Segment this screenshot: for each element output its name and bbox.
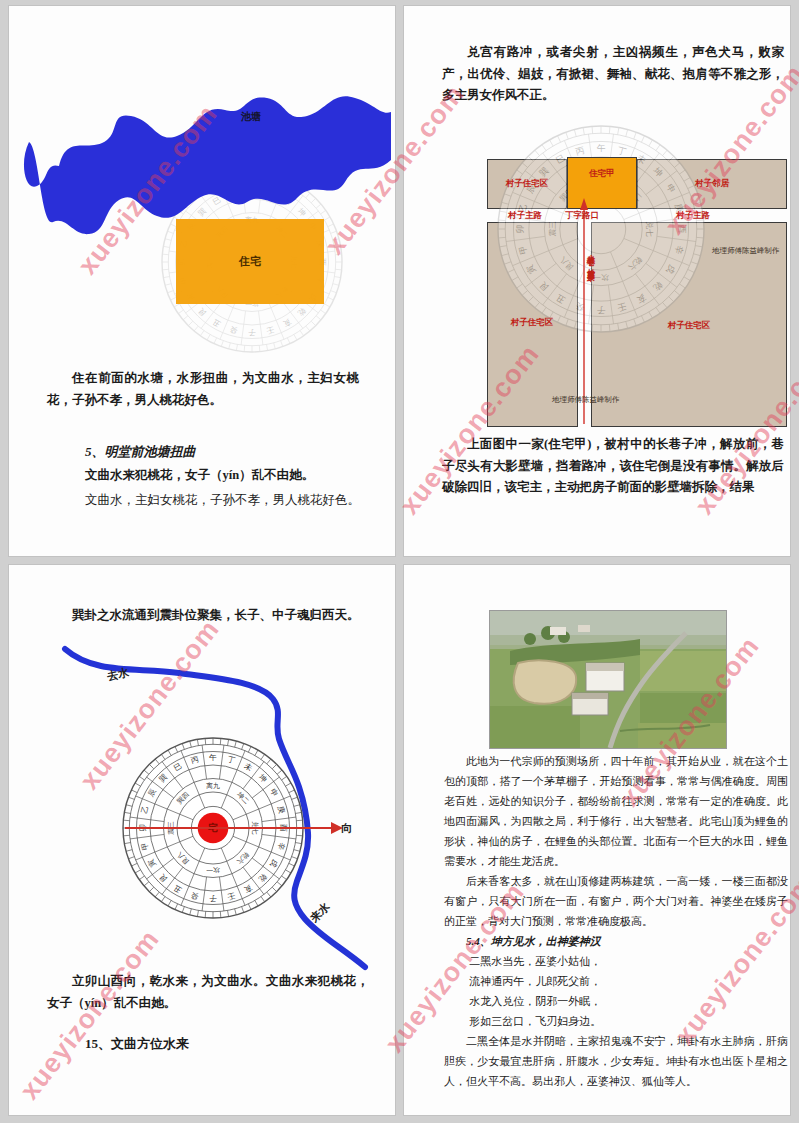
maker-credit-bottom: 地理师傅陈益峰制作: [552, 395, 620, 405]
para-two-buildings: 后来香客太多，就在山顶修建两栋建筑，一高一矮，一楼三面都没有窗户，只有大门所在一…: [444, 871, 788, 931]
house-jia-label: 住宅甲: [589, 168, 615, 180]
luopan-compass-overlay: 午丁未坤申庚酉辛戌乾亥壬子癸丑艮寅甲卯乙辰巽巳丙离九坤二兑七乾六坎一艮八震三巽四: [496, 124, 706, 334]
para-dui-palace: 兑宫有路冲，或者尖射，主凶祸频生，声色犬马，败家产，出优伶、娼妓，有掀裙、舞袖、…: [442, 42, 784, 107]
maker-credit-right: 地理师傅陈益峰制作: [712, 246, 780, 256]
svg-text:兑七: 兑七: [645, 221, 654, 237]
verse-line-1: 二黑水当先，巫婆小姑仙，: [444, 951, 788, 971]
para-master-site: 此地为一代宗师的预测场所，四十年前，其开始从业，就在这个土包的顶部，搭了一个茅草…: [444, 751, 788, 871]
aerial-photo: [489, 610, 727, 749]
svg-text:午: 午: [597, 143, 606, 153]
house-label: 住宅: [239, 254, 261, 269]
svg-text:坎一: 坎一: [206, 867, 221, 874]
svg-text:酉: 酉: [677, 225, 687, 234]
svg-text:子: 子: [209, 894, 217, 903]
alley-label: 村子巷子，长度四百多米: [584, 249, 595, 399]
svg-text:子: 子: [248, 328, 256, 337]
section-heading-5-4: 5.4、坤方见水，出神婆神汉: [444, 931, 788, 951]
verse-line-bold: 文曲水来犯桃花，女子（yín）乱不由她。: [85, 467, 314, 484]
para-alley-story: 上面图中一家(住宅甲)，被村中的长巷子冲，解放前，巷子尽头有大影壁墙，挡着路冲，…: [442, 434, 784, 499]
label-block-bottom-right: 村子住宅区: [668, 320, 711, 332]
document-canvas: { "watermark": { "text": "xueyizone.com"…: [0, 0, 799, 1123]
house-rect: 住宅: [176, 219, 324, 304]
svg-text:离九: 离九: [205, 782, 220, 789]
verse-line-4: 形如三岔口，飞刃妇身边。: [444, 1011, 788, 1031]
label-block-top-left: 村子住宅区: [506, 178, 549, 190]
page-master-site: 此地为一代宗师的预测场所，四十年前，其开始从业，就在这个土包的顶部，搭了一个茅草…: [403, 564, 791, 1116]
svg-text:卯: 卯: [515, 225, 525, 234]
label-block-bottom-left: 村子住宅区: [511, 317, 554, 329]
svg-text:子: 子: [596, 305, 605, 315]
label-junction: 丁字路口: [565, 210, 599, 222]
page-village-diagram: 兑宫有路冲，或者尖射，主凶祸频生，声色犬马，败家产，出优伶、娼妓，有掀裙、舞袖、…: [403, 5, 791, 557]
facing-label: 向: [341, 821, 352, 836]
page-river-compass: 巽卦之水流通到震卦位聚集，长子、中子魂归西天。 去水 来水 午丁未坤申庚酉辛戌乾…: [8, 564, 396, 1116]
label-road-left: 村子主路: [508, 210, 542, 222]
para-pond-description: 住在前面的水塘，水形扭曲，为文曲水，主妇女桃花，子孙不孝，男人桃花好色。: [47, 368, 359, 411]
verse-line-3: 水龙入兑位，阴邪一外眠，: [444, 991, 788, 1011]
svg-text:坎一: 坎一: [593, 273, 610, 282]
explain-line: 文曲水，主妇女桃花，子孙不孝，男人桃花好色。: [85, 492, 360, 509]
svg-text:午: 午: [208, 753, 217, 762]
pond-label: 池塘: [241, 110, 261, 124]
label-block-top-right: 村子邻居: [695, 178, 729, 190]
para-erhei-water: 二黑全体是水并阴暗，主家招鬼魂不安宁，坤卦有水主肺病，肝病胆疾，少女最宜患肝病，…: [444, 1031, 788, 1091]
label-road-right: 村子主路: [676, 210, 710, 222]
page-pond-diagram: 池塘 午丁未坤申庚酉辛戌乾亥壬子癸丑艮寅甲卯乙辰巽巳丙离九坤二兑七乾六坎一艮八震…: [8, 5, 396, 557]
facing-arrow: [119, 817, 359, 839]
svg-text:震三: 震三: [548, 221, 557, 237]
section-heading-5: 5、明堂前池塘扭曲: [85, 443, 196, 461]
page4-text-flow: 此地为一代宗师的预测场所，四十年前，其开始从业，就在这个土包的顶部，搭了一个茅草…: [444, 751, 788, 1091]
verse-line-2: 流神通丙午，儿郎死父前，: [444, 971, 788, 991]
